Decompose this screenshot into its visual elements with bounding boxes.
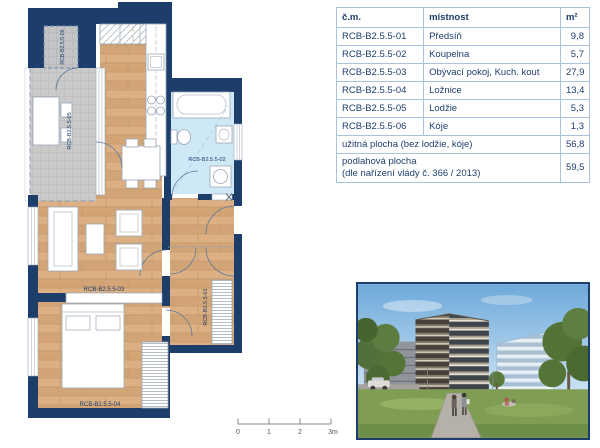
main-building-right-face (449, 314, 489, 396)
room-code: RCB-B2.5.5-02 (337, 46, 424, 64)
col-header-code: č.m. (337, 8, 424, 28)
main-building-left-face (416, 314, 450, 396)
scale-tick-2: 2 (298, 429, 302, 436)
room-area: 1,3 (560, 118, 589, 136)
summary-row-usable: užitná plocha (bez lodžie, kóje) 56,8 (337, 136, 590, 154)
room-area: 5,3 (560, 100, 589, 118)
table-row: RCB-B2.5.5-05 Lodžie 5,3 (337, 100, 590, 118)
room-label-koje: RCB-B2.5.5-06 (60, 29, 66, 64)
room-area: 9,8 (560, 28, 589, 46)
room-name: Ložnice (424, 82, 561, 100)
pillow (66, 316, 90, 330)
room-name: Kóje (424, 118, 561, 136)
col-header-room: místnost (424, 8, 561, 28)
room-area: 13,4 (560, 82, 589, 100)
bathroom-sink (216, 126, 232, 143)
building-photo-render (358, 284, 588, 438)
summary-value: 56,8 (560, 136, 589, 154)
building-photo (356, 282, 590, 440)
room-label-loggia: RCB-B2.5.5-05 (67, 112, 73, 149)
room-area: 5,7 (560, 46, 589, 64)
scale-tick-3: 3m (328, 429, 338, 436)
table-row: RCB-B2.5.5-02 Koupelna 5,7 (337, 46, 590, 64)
table-header-row: č.m. místnost m² (337, 8, 590, 28)
summary-label-line2: (dle nařízení vlády č. 366 / 2013) (342, 168, 555, 180)
room-code: RCB-B2.5.5-03 (337, 64, 424, 82)
scale-tick-0: 0 (236, 429, 240, 436)
loggia-table (33, 97, 59, 145)
summary-row-floor: podlahová plocha (dle nařízení vlády č. … (337, 154, 590, 183)
table-row: RCB-B2.5.5-04 Ložnice 13,4 (337, 82, 590, 100)
coffee-table (86, 224, 104, 254)
toilet (171, 130, 177, 144)
living-door-gap (162, 250, 170, 276)
room-area: 27,9 (560, 64, 589, 82)
living-cabinet (66, 293, 162, 303)
floor-plan-drawing: RCB-B2.5.5-03 RCB-B2.5.5-04 RCB-B2.5.5-0… (0, 0, 345, 443)
summary-label: užitná plocha (bez lodžie, kóje) (337, 136, 561, 154)
room-code: RCB-B2.5.5-04 (337, 82, 424, 100)
room-name: Předsíň (424, 28, 561, 46)
room-label-hall: RCB-B2.5.5-01 (203, 288, 209, 325)
summary-label-line1: podlahová plocha (342, 156, 555, 168)
scale-tick-1: 1 (267, 429, 271, 436)
room-label-bathroom: RCB-B2.5.5-02 (188, 157, 225, 163)
bedroom-wardrobe (142, 342, 168, 408)
summary-label: podlahová plocha (dle nařízení vlády č. … (337, 154, 561, 183)
room-name: Obývací pokoj, Kuch. kout (424, 64, 561, 82)
hall-wardrobe (212, 280, 232, 344)
table-row: RCB-B2.5.5-01 Předsíň 9,8 (337, 28, 590, 46)
area-table: č.m. místnost m² RCB-B2.5.5-01 Předsíň 9… (336, 7, 590, 183)
room-name: Koupelna (424, 46, 561, 64)
sofa (48, 207, 78, 271)
floor-plan: RCB-B2.5.5-03 RCB-B2.5.5-04 RCB-B2.5.5-0… (0, 0, 345, 443)
col-header-area: m² (560, 8, 589, 28)
room-code: RCB-B2.5.5-06 (337, 118, 424, 136)
scale-bar: 0 1 2 3m (236, 419, 338, 437)
bedroom-door-gap (162, 308, 170, 336)
table-row: RCB-B2.5.5-06 Kóje 1,3 (337, 118, 590, 136)
entry-door-gap (234, 206, 242, 234)
summary-value: 59,5 (560, 154, 589, 183)
room-label-bedroom: RCB-B2.5.5-04 (80, 402, 121, 408)
room-code: RCB-B2.5.5-05 (337, 100, 424, 118)
area-table-panel: č.m. místnost m² RCB-B2.5.5-01 Předsíň 9… (336, 7, 590, 183)
room-name: Lodžie (424, 100, 561, 118)
table-row: RCB-B2.5.5-03 Obývací pokoj, Kuch. kout … (337, 64, 590, 82)
room-code: RCB-B2.5.5-01 (337, 28, 424, 46)
pillow (96, 316, 120, 330)
loggia-edge (25, 68, 30, 201)
room-label-living: RCB-B2.5.5-03 (84, 287, 125, 293)
